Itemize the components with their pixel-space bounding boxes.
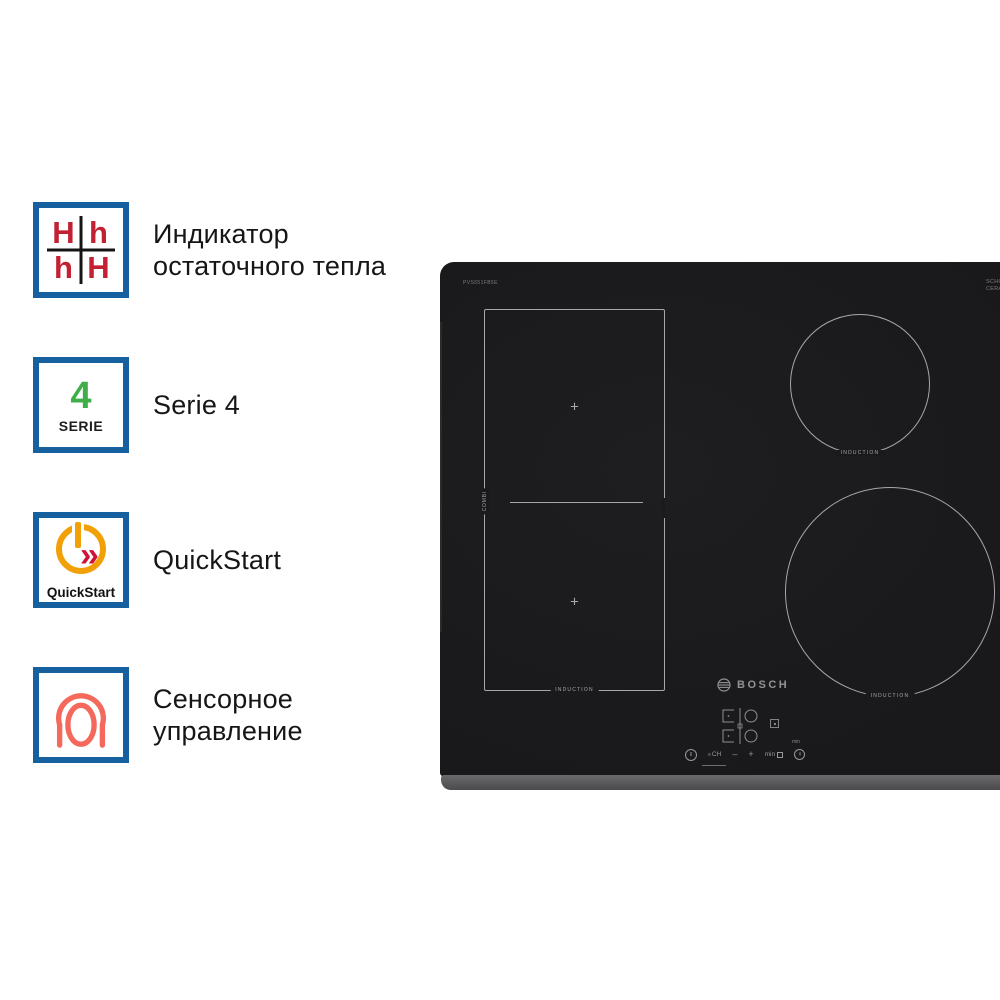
- flex-select-control[interactable]: ≡ CH: [708, 751, 721, 758]
- feature-label: QuickStart: [153, 544, 281, 576]
- serie-number: 4: [70, 377, 91, 415]
- zone-selector-diagram[interactable]: [720, 707, 766, 750]
- touch-control-icon: [45, 679, 117, 751]
- minus-button[interactable]: –: [732, 750, 737, 759]
- glass-brand-line: SCHOTT: [986, 279, 1000, 286]
- feature-label: Serie 4: [153, 389, 240, 421]
- touch-control-strip[interactable]: ≡ CH – + min: [685, 747, 805, 762]
- flex-bars-icon: ≡: [708, 752, 710, 758]
- zone-center-marker: +: [570, 400, 579, 415]
- touch-control-badge: [33, 667, 129, 763]
- serie-4-badge: 4 SERIE: [33, 357, 129, 453]
- timer-control[interactable]: min: [765, 751, 783, 758]
- power-button-icon[interactable]: [685, 749, 697, 761]
- feature-serie-4: 4 SERIE Serie 4: [33, 357, 240, 453]
- timer-label: min: [765, 751, 775, 758]
- hob-front-bevel: [441, 775, 1000, 790]
- timer-unit-caption: min: [792, 739, 800, 745]
- quickstart-badge: » QuickStart: [33, 512, 129, 608]
- model-label: PVS651FB5E: [463, 280, 498, 286]
- feature-quickstart: » QuickStart QuickStart: [33, 512, 281, 608]
- hob-glass-surface: PVS651FB5E SCHOTT CERAN + + COMBI INDUCT…: [440, 262, 1000, 776]
- plus-button[interactable]: +: [748, 750, 753, 759]
- feature-residual-heat: H h h H Индикатор остаточного тепла: [33, 202, 386, 298]
- quickstart-caption: QuickStart: [47, 585, 115, 600]
- induction-zone-label: INDUCTION: [550, 687, 599, 694]
- residual-letter: h: [46, 250, 81, 285]
- feature-touch-control: Сенсорное управление: [33, 667, 303, 763]
- induction-hob: PVS651FB5E SCHOTT CERAN + + COMBI INDUCT…: [440, 262, 1000, 790]
- cooking-zone-combi: + + COMBI INDUCTION: [484, 309, 665, 691]
- feature-label-line: Индикатор: [153, 218, 386, 250]
- feature-label-line: Сенсорное: [153, 683, 303, 715]
- quickstart-icon: » QuickStart: [42, 520, 120, 600]
- cooking-zone-large: INDUCTION: [785, 487, 995, 697]
- bosch-wordmark: BOSCH: [737, 679, 789, 691]
- childlock-display-icon: [770, 719, 779, 728]
- residual-heat-icon: H h h H: [46, 215, 116, 285]
- feature-label-line: остаточного тепла: [153, 250, 386, 282]
- timer-box-icon: [777, 752, 783, 758]
- border-gap: [662, 498, 665, 518]
- induction-zone-label: INDUCTION: [866, 693, 915, 700]
- zone-center-marker: +: [570, 595, 579, 610]
- combi-zone-divider: [510, 502, 643, 503]
- feature-label-line: Serie 4: [153, 389, 240, 421]
- feature-label-line: QuickStart: [153, 544, 281, 576]
- induction-zone-label: INDUCTION: [836, 450, 885, 457]
- residual-letter: H: [46, 215, 81, 250]
- bosch-logo: BOSCH: [717, 678, 789, 692]
- feature-label: Сенсорное управление: [153, 683, 303, 748]
- residual-letter: h: [81, 215, 116, 250]
- product-image: H h h H Индикатор остаточного тепла 4 SE…: [0, 0, 1000, 1000]
- serie-4-icon: 4 SERIE: [59, 377, 104, 433]
- flex-select-label: CH: [712, 751, 721, 758]
- combi-zone-label: COMBI: [481, 488, 489, 514]
- glass-reflection: [440, 322, 442, 632]
- residual-heat-badge: H h h H: [33, 202, 129, 298]
- cooking-zone-small: INDUCTION: [790, 314, 930, 454]
- chevrons-icon: »: [80, 538, 95, 572]
- feature-label: Индикатор остаточного тепла: [153, 218, 386, 283]
- clock-button-icon[interactable]: [794, 749, 805, 760]
- glass-brand-line: CERAN: [986, 286, 1000, 293]
- divider: [47, 249, 115, 252]
- bosch-emblem-icon: [717, 678, 731, 692]
- feature-label-line: управление: [153, 715, 303, 747]
- residual-letter: H: [81, 250, 116, 285]
- control-underline: [702, 765, 726, 766]
- glass-brand-label: SCHOTT CERAN: [986, 279, 1000, 293]
- serie-caption: SERIE: [59, 419, 104, 433]
